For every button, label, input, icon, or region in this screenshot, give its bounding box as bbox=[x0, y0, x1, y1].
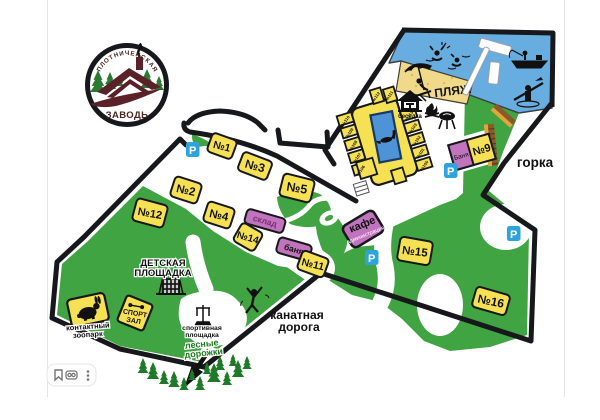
svg-text:ПЛОЩАДКА: ПЛОЩАДКА bbox=[134, 268, 191, 279]
svg-text:P: P bbox=[447, 166, 454, 178]
svg-text:P: P bbox=[368, 253, 375, 265]
svg-text:P: P bbox=[510, 229, 517, 241]
svg-text:P: P bbox=[189, 145, 196, 157]
svg-text:Ч: Ч bbox=[125, 50, 129, 57]
svg-text:ЗАВОДЬ: ЗАВОДЬ bbox=[106, 110, 149, 121]
svg-text:дорога: дорога bbox=[278, 320, 320, 334]
svg-text:горка: горка bbox=[517, 155, 554, 170]
svg-text:беседка: беседка bbox=[398, 113, 422, 120]
svg-text:спортивная: спортивная bbox=[182, 325, 222, 332]
